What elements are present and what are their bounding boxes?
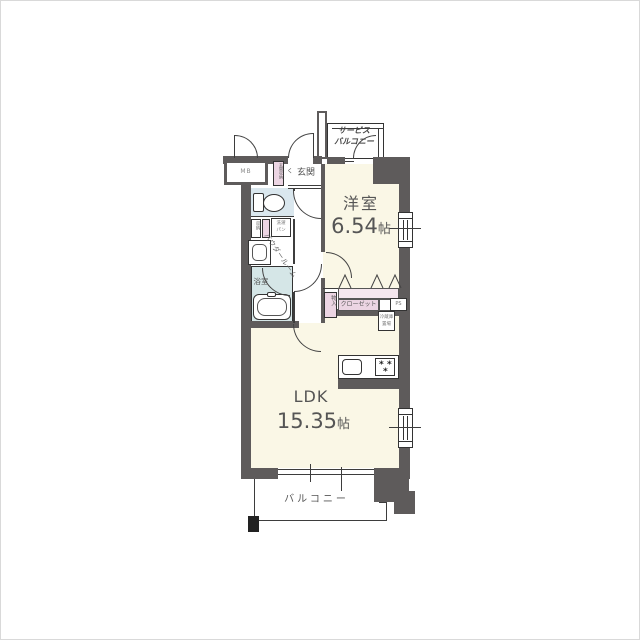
entrance-step-mark: く [286,169,294,176]
shoe-cabinet: 玄関収納 [273,161,284,186]
powder-cabinet-label: 収納 [252,221,260,230]
service-balcony-label-2: バルコニー [327,137,381,146]
laundry-pan: 洗濯 パン [271,218,291,237]
wall-corner-block [373,157,410,184]
ldk-window [398,408,413,448]
washbasin-bowl [252,244,267,261]
western-room-size-unit: 帖 [378,222,391,237]
bathtub-inner [257,298,287,316]
laundry-line1: 洗濯 [272,221,290,226]
entrance-label: 玄関 [293,168,319,178]
pipe-space: PS [390,298,407,311]
ldk-window-tick [389,427,421,428]
partition-hall-wet-3 [293,292,295,323]
entrance-step-line-1 [288,185,321,186]
western-top-window-line-2 [345,161,354,162]
wall-top-entrance-right [313,156,322,164]
balcony-partition-post [248,516,259,532]
wall-western-top [327,157,345,164]
entrance-step-line-2 [288,188,321,189]
wall-bottom-right [374,468,410,479]
wall-balcony-mass-b [394,491,415,514]
powder-cabinet: 収納 [251,219,261,238]
closet-label: クローゼット [339,302,378,309]
western-room-size-value: 6.54 [331,214,378,238]
ldk-size-value: 15.35 [277,409,337,433]
closet: クローゼット [338,299,379,311]
sliding-door-line-1 [278,469,374,470]
toilet-bowl [263,194,285,212]
wall-bottom-left [241,468,278,479]
window-glass [403,220,408,240]
fridge-line2: 置場 [379,322,394,327]
sliding-door-tick-1 [310,464,311,482]
ldk-size-unit: 帖 [337,417,350,432]
sliding-door-line-2 [278,474,374,475]
fridge-line1: 冷蔵庫 [379,315,394,320]
pipe-space-label: PS [391,302,406,308]
western-room-size: 6.54帖 [319,214,403,238]
meter-box: MB [224,160,268,185]
service-balcony-label-1: サービス [329,126,379,135]
corridor-door-leaf [234,135,235,158]
window-cap-bottom [399,241,412,247]
window-cap-top [399,409,412,415]
laundry-line2: パン [272,228,290,233]
balcony-outline-connector [379,502,387,503]
western-room-label: 洋室 [323,195,399,213]
meter-box-label: MB [227,169,265,176]
partition-toilet-powder [251,216,294,217]
floorplan-image: MB 玄関収納 クローゼット 物入 PS 冷蔵庫 置場 収納 洗濯 パン * *… [0,0,640,640]
entrance-door-arc [288,133,313,158]
shoe-cabinet-label: 玄関収納 [274,163,283,179]
balcony-label: バルコニー [254,494,379,506]
corridor-door-arc [235,135,258,158]
entrance-door-leaf [313,133,314,158]
kitchen-sink [342,359,362,375]
stove-burner-3: * [383,368,388,377]
kitchen-stove: * * * [375,358,395,376]
partition-hall-wet-2 [293,219,295,264]
ldk-label: LDK [251,388,371,406]
window-cap-bottom [399,441,412,447]
pipe-shaft [317,111,327,159]
wall-left [241,184,251,479]
bath-faucet [267,292,276,297]
monoire-storage: 物入 [324,292,337,318]
bathroom-label: 浴室 [249,278,273,287]
balcony-outline-bottom [254,520,387,521]
window-glass [403,416,408,440]
ldk-size: 15.35帖 [241,409,386,433]
sliding-door-tick-2 [341,467,342,491]
wall-wetblock-bottom [241,321,299,328]
monoire-label: 物入 [325,295,336,306]
balcony-outline-right [386,502,387,521]
western-top-window-line-1 [345,158,354,159]
fridge-space: 冷蔵庫 置場 [378,311,395,331]
